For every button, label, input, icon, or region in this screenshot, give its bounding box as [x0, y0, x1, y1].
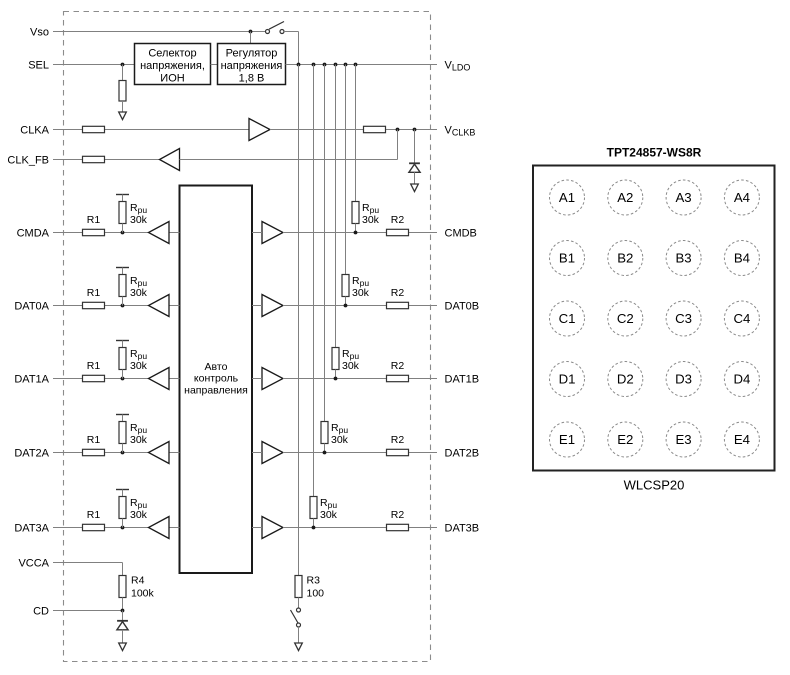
svg-text:30k: 30k [331, 434, 349, 446]
svg-text:контроль: контроль [194, 373, 239, 385]
svg-text:30k: 30k [352, 287, 370, 299]
svg-text:30k: 30k [130, 434, 148, 446]
svg-text:E1: E1 [559, 432, 575, 447]
svg-text:DAT2B: DAT2B [445, 448, 480, 460]
svg-text:DAT3B: DAT3B [445, 523, 480, 535]
svg-text:R4: R4 [131, 575, 145, 587]
svg-text:D3: D3 [675, 372, 692, 387]
svg-text:C1: C1 [559, 311, 576, 326]
svg-text:TPT24857-WS8R: TPT24857-WS8R [607, 146, 702, 160]
svg-text:R1: R1 [87, 509, 101, 521]
svg-text:CLK_FB: CLK_FB [7, 155, 49, 167]
svg-text:C4: C4 [733, 311, 750, 326]
svg-text:R2: R2 [391, 434, 405, 446]
svg-text:ИОН: ИОН [160, 73, 184, 85]
svg-text:Регулятор: Регулятор [226, 48, 278, 60]
svg-text:R2: R2 [391, 287, 405, 299]
svg-text:30k: 30k [130, 214, 148, 226]
svg-text:R2: R2 [391, 214, 405, 226]
svg-text:A2: A2 [617, 190, 633, 205]
svg-text:B4: B4 [734, 251, 750, 266]
svg-text:R3: R3 [307, 575, 321, 587]
svg-text:A1: A1 [559, 190, 575, 205]
svg-text:100k: 100k [131, 588, 155, 600]
svg-text:направления: направления [184, 384, 248, 396]
svg-text:R1: R1 [87, 214, 101, 226]
svg-text:CLKA: CLKA [20, 125, 49, 137]
svg-text:CD: CD [33, 606, 49, 618]
svg-text:Селектор: Селектор [148, 48, 196, 60]
svg-text:WLCSP20: WLCSP20 [624, 478, 685, 493]
svg-text:30k: 30k [342, 360, 360, 372]
svg-text:R1: R1 [87, 434, 101, 446]
svg-text:Авто: Авто [205, 361, 228, 373]
svg-text:R1: R1 [87, 287, 101, 299]
svg-text:E3: E3 [676, 432, 692, 447]
svg-text:E2: E2 [617, 432, 633, 447]
svg-text:VCCA: VCCA [18, 558, 49, 570]
svg-text:R1: R1 [87, 360, 101, 372]
svg-text:A4: A4 [734, 190, 750, 205]
svg-text:CMDA: CMDA [17, 228, 50, 240]
svg-text:DAT2A: DAT2A [14, 448, 49, 460]
svg-text:Vso: Vso [30, 27, 49, 39]
svg-text:DAT1A: DAT1A [14, 374, 49, 386]
svg-text:A3: A3 [676, 190, 692, 205]
svg-text:1,8 В: 1,8 В [239, 73, 265, 85]
svg-text:напряжения,: напряжения, [140, 60, 205, 72]
svg-text:D4: D4 [733, 372, 750, 387]
svg-text:30k: 30k [130, 360, 148, 372]
svg-text:B1: B1 [559, 251, 575, 266]
svg-text:30k: 30k [320, 509, 338, 521]
svg-text:B3: B3 [676, 251, 692, 266]
svg-text:DAT0A: DAT0A [14, 301, 49, 313]
svg-text:VCLKB: VCLKB [445, 125, 476, 138]
svg-text:30k: 30k [362, 214, 380, 226]
svg-text:30k: 30k [130, 287, 148, 299]
svg-text:B2: B2 [617, 251, 633, 266]
svg-text:C2: C2 [617, 311, 634, 326]
svg-text:100: 100 [307, 588, 325, 600]
svg-text:VLDO: VLDO [445, 60, 471, 73]
svg-text:E4: E4 [734, 432, 750, 447]
svg-text:D1: D1 [559, 372, 576, 387]
svg-text:30k: 30k [130, 509, 148, 521]
svg-text:DAT0B: DAT0B [445, 301, 480, 313]
svg-text:R2: R2 [391, 360, 405, 372]
svg-text:D2: D2 [617, 372, 634, 387]
svg-text:напряжения: напряжения [221, 60, 283, 72]
svg-text:CMDB: CMDB [445, 228, 477, 240]
svg-text:SEL: SEL [28, 60, 49, 72]
svg-text:DAT1B: DAT1B [445, 374, 480, 386]
svg-text:C3: C3 [675, 311, 692, 326]
svg-text:DAT3A: DAT3A [14, 523, 49, 535]
svg-text:R2: R2 [391, 509, 405, 521]
